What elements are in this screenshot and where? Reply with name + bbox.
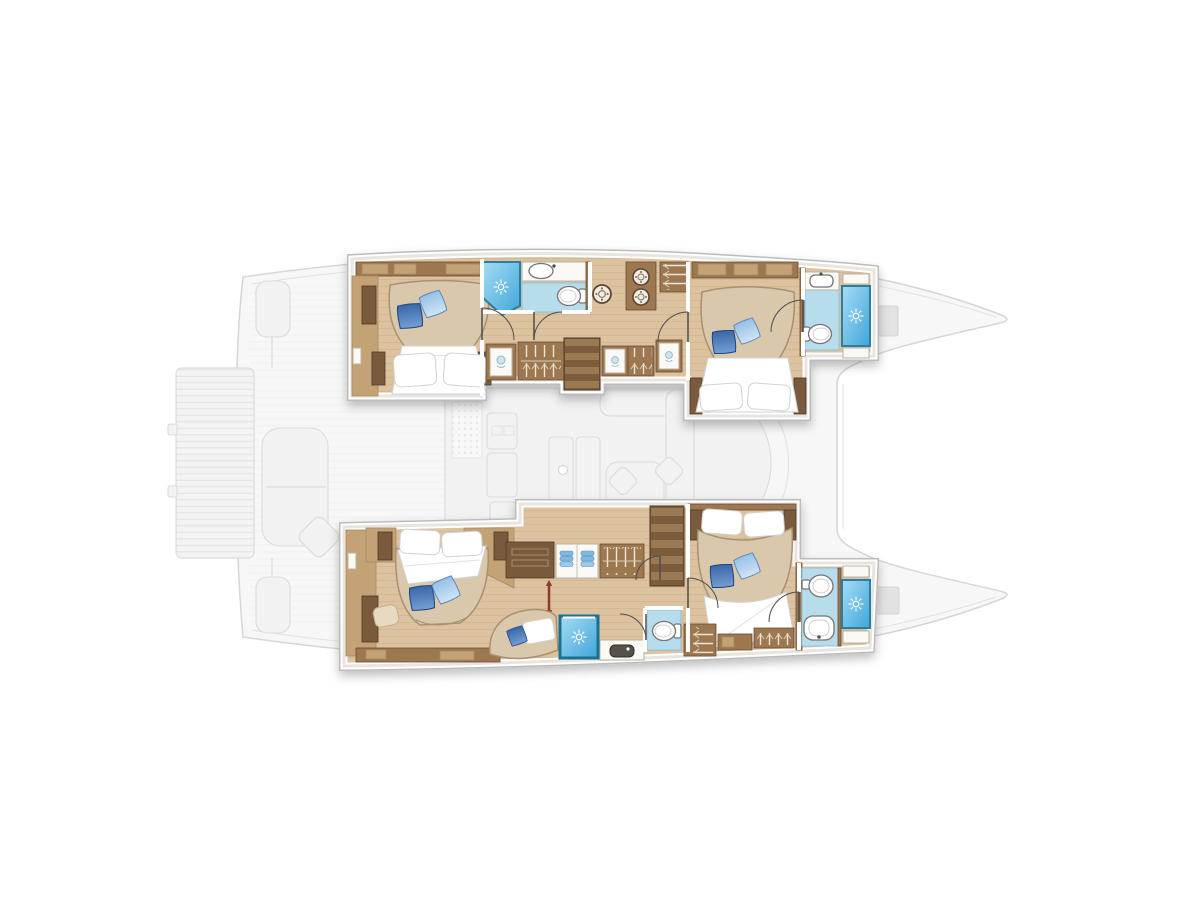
mast-foot — [559, 466, 568, 475]
shower — [842, 286, 870, 346]
staircase — [564, 338, 600, 390]
platform-cleat-top — [168, 424, 177, 435]
head-pillow — [393, 353, 437, 388]
head-pillow — [441, 531, 482, 557]
bath-a-aft — [482, 262, 590, 315]
towel-shelves — [556, 544, 598, 578]
wardrobe — [754, 628, 794, 648]
bath-a-fwd — [800, 268, 870, 358]
toilet — [653, 622, 682, 641]
floor-plan-svg — [0, 0, 1200, 900]
bedside-post — [378, 532, 392, 560]
bedside-cabinet-left — [372, 352, 385, 385]
swim-platform — [176, 368, 254, 558]
cabin-a-aft — [352, 262, 491, 396]
wardrobe — [518, 342, 564, 380]
head-pillow — [701, 509, 743, 536]
head-pillow — [399, 529, 440, 555]
toilet — [804, 616, 834, 640]
vanity-panel — [656, 340, 682, 372]
wardrobe — [660, 262, 688, 292]
washer-drum-icon — [593, 285, 611, 303]
vanity-panel — [602, 346, 628, 376]
washbasin — [810, 275, 833, 287]
saloon-mat — [452, 402, 482, 458]
shower — [842, 580, 870, 628]
washbasin — [529, 264, 553, 279]
shower — [560, 616, 598, 658]
dark-washbasin — [610, 645, 634, 657]
platform-cleat-bottom — [168, 486, 177, 497]
galley-counters — [487, 413, 517, 524]
wardrobe — [628, 346, 654, 376]
toilet — [803, 325, 832, 344]
washer-drum-icon — [633, 269, 649, 285]
vanity-panel — [486, 344, 516, 380]
head-pillow — [743, 511, 785, 538]
head-pillow — [699, 383, 743, 412]
double-bed — [388, 281, 489, 395]
floor-plan-canvas — [0, 0, 1200, 900]
toilet — [558, 287, 587, 306]
bath-b-fwd — [796, 563, 870, 650]
washer-drum-icon — [633, 289, 649, 305]
double-bed — [696, 287, 798, 412]
hull-bottom-suites — [344, 504, 874, 666]
staircase — [650, 506, 684, 586]
head-pillow — [747, 383, 791, 412]
